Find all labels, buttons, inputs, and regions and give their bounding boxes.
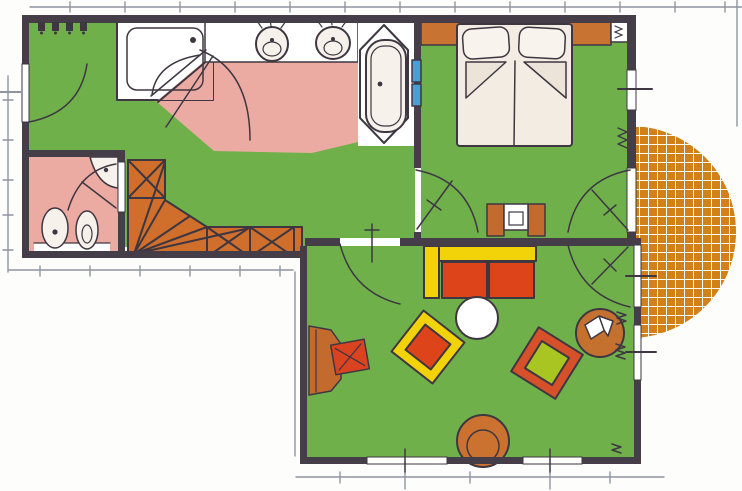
sofa-back (424, 246, 536, 261)
wall-living-left (300, 246, 307, 464)
pillow-left (462, 26, 510, 59)
double-bed (457, 24, 572, 146)
bedroom-terrace-door-opening (627, 168, 636, 232)
floor-plan-drawing (0, 0, 742, 491)
wall-living-bottom (300, 457, 641, 464)
bathtub-area (358, 22, 414, 146)
wc-door-opening (118, 162, 125, 212)
coffee-table (456, 297, 498, 339)
toilet (42, 208, 68, 248)
living-bottom-window-right (523, 457, 582, 464)
washbasin-counter (205, 17, 358, 62)
wall-left (22, 15, 29, 258)
sofa-cushion-right (489, 262, 534, 298)
towel-radiator-2 (412, 84, 421, 106)
towel-radiator-1 (412, 60, 421, 82)
wall-wing-bottom (22, 251, 305, 258)
tub-drain (378, 82, 383, 87)
living-door-opening (340, 238, 400, 246)
pillow-right (518, 27, 566, 59)
shower-drain (190, 37, 196, 43)
entry-door-opening (22, 64, 29, 122)
wall-wc-top (29, 150, 125, 157)
dressing-stool (504, 204, 528, 230)
living-bottom-window-left (367, 457, 447, 464)
shower (117, 20, 215, 102)
sofa-cushion-left (442, 262, 487, 298)
wall-top (22, 15, 636, 23)
sofa-arm (424, 246, 439, 298)
desk-chair (331, 339, 370, 374)
floor-plan (0, 0, 742, 491)
